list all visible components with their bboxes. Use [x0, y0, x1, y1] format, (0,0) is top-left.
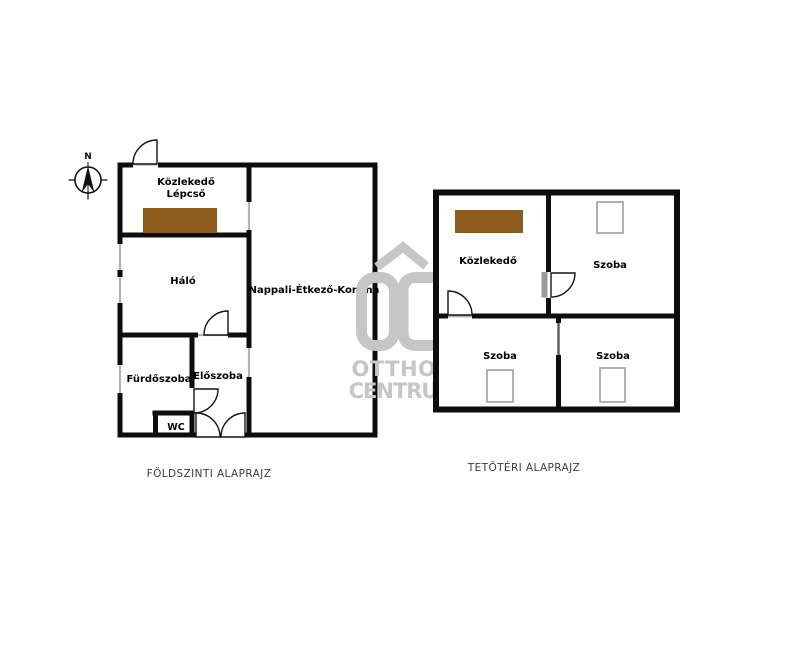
skylight-window-bottom-right — [600, 368, 625, 402]
skylight-window-top — [597, 202, 623, 233]
attic-caption: TETŐTÉRI ALAPRAJZ — [467, 460, 580, 474]
open-door-leaf — [542, 272, 548, 298]
attic-floor-plan: Közlekedő Szoba Szoba Szoba TETŐTÉRI ALA… — [0, 0, 800, 647]
room-label-attic-szoba-br: Szoba — [596, 351, 630, 362]
attic-stairs — [455, 210, 523, 233]
room-label-attic-kozlekedo: Közlekedő — [459, 255, 517, 267]
floor-plan-page: N Közlekedő Lépcső Háló Nappali-Étkező-K… — [0, 0, 800, 647]
skylight-window-bottom-left — [487, 370, 513, 402]
room-label-attic-szoba-bl: Szoba — [483, 351, 517, 362]
room-label-attic-szoba-top: Szoba — [593, 260, 627, 271]
